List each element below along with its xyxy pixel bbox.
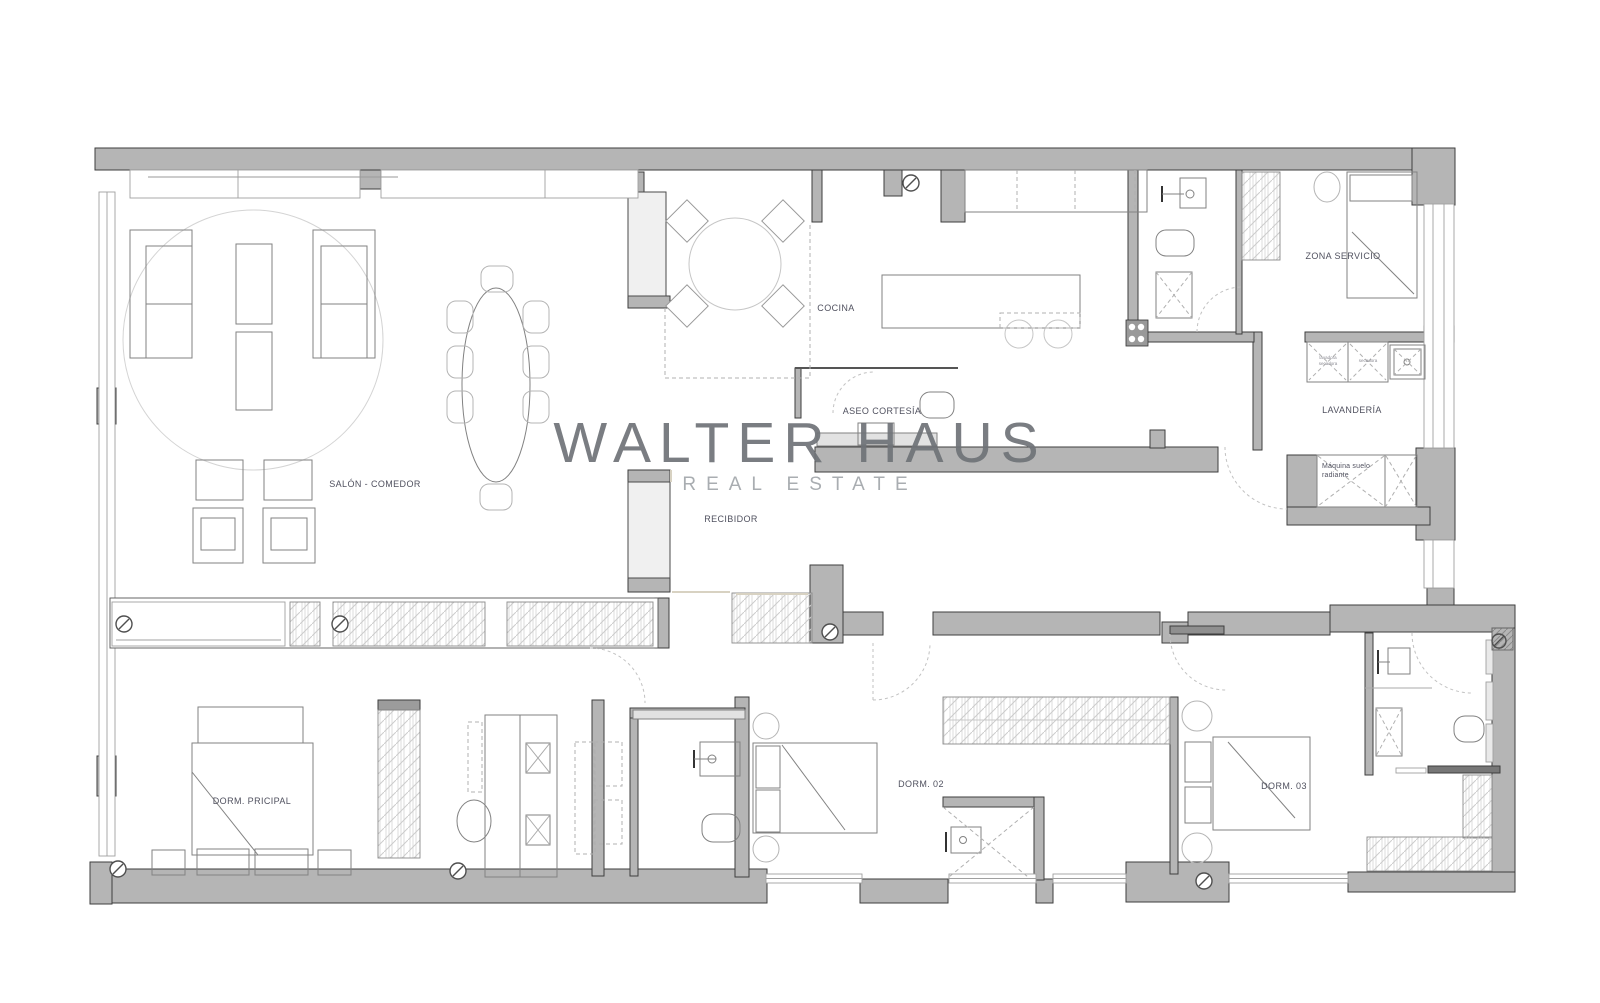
stool bbox=[1044, 320, 1072, 348]
floorplan-linework bbox=[0, 0, 1600, 1003]
maquina-line2: radiante bbox=[1322, 471, 1384, 480]
sofa-right bbox=[313, 230, 375, 358]
room-label-lavanderia: LAVANDERÍA bbox=[1322, 405, 1382, 415]
dining-table bbox=[462, 288, 530, 482]
circle-slash-icon bbox=[110, 861, 126, 877]
rug bbox=[123, 210, 383, 470]
floor-plan: SALÓN - COMEDOR COCINA ASEO CORTESÍA REC… bbox=[0, 0, 1600, 1003]
cased-openings bbox=[628, 192, 670, 578]
room-label-zona-servicio: ZONA SERVICIO bbox=[1305, 251, 1380, 261]
armchair bbox=[193, 508, 243, 563]
coffee-table bbox=[236, 244, 272, 324]
vanity bbox=[633, 710, 745, 719]
kitchen-island bbox=[882, 275, 1080, 328]
toilet bbox=[1454, 716, 1484, 742]
circle-slash-icon bbox=[332, 616, 348, 632]
windows-layer bbox=[99, 170, 1513, 883]
room-label-dorm-02: DORM. 02 bbox=[898, 779, 944, 789]
ottoman bbox=[264, 460, 312, 500]
circle-slash-icon bbox=[822, 624, 838, 640]
bed-principal bbox=[192, 707, 313, 855]
toilet bbox=[702, 814, 740, 842]
room-label-aseo-cortesia: ASEO CORTESÍA bbox=[843, 406, 922, 416]
circle-slash-icon bbox=[903, 175, 919, 191]
circle-slash-icon bbox=[450, 863, 466, 879]
side-table bbox=[1314, 172, 1340, 202]
circle-slash-icon bbox=[1196, 873, 1212, 889]
room-label-salon-comedor: SALÓN - COMEDOR bbox=[329, 479, 421, 489]
side-table bbox=[753, 713, 779, 739]
service-bed bbox=[1347, 172, 1417, 298]
room-label-recibidor: RECIBIDOR bbox=[704, 514, 758, 524]
stove bbox=[1126, 320, 1148, 346]
room-label-dorm-03: DORM. 03 bbox=[1261, 781, 1307, 791]
desk-cabinet bbox=[485, 715, 557, 877]
room-label-cocina: COCINA bbox=[817, 303, 854, 313]
breakfast-chairs bbox=[666, 200, 804, 327]
coffee-table bbox=[236, 332, 272, 410]
equipment-label-dryer: secadora bbox=[1351, 358, 1385, 364]
equipment-label-washer: lavadora secadora bbox=[1311, 355, 1345, 366]
maquina-line1: Máquina suelo bbox=[1322, 462, 1384, 471]
thresholds bbox=[671, 470, 808, 594]
dashed-layer bbox=[468, 170, 1421, 877]
desk-chair bbox=[457, 800, 491, 842]
label-maquina-suelo-radiante: Máquina suelo radiante bbox=[1322, 462, 1384, 481]
sink bbox=[1388, 648, 1410, 674]
toilet bbox=[1156, 230, 1194, 256]
vanity bbox=[817, 433, 937, 446]
circle-slash-icon bbox=[116, 616, 132, 632]
side-table bbox=[753, 836, 779, 862]
bed-02 bbox=[753, 743, 877, 833]
sink bbox=[1180, 178, 1206, 208]
toilet bbox=[920, 392, 954, 418]
sofa-left bbox=[130, 230, 192, 358]
room-label-dorm-principal: DORM. PRICIPAL bbox=[213, 796, 291, 806]
stool bbox=[1005, 320, 1033, 348]
furniture-layer bbox=[123, 170, 1484, 877]
armchair bbox=[263, 508, 315, 563]
side-table bbox=[1182, 833, 1212, 863]
breakfast-table bbox=[689, 218, 781, 310]
kitchen-cabinets bbox=[965, 170, 1147, 212]
side-table bbox=[1182, 701, 1212, 731]
